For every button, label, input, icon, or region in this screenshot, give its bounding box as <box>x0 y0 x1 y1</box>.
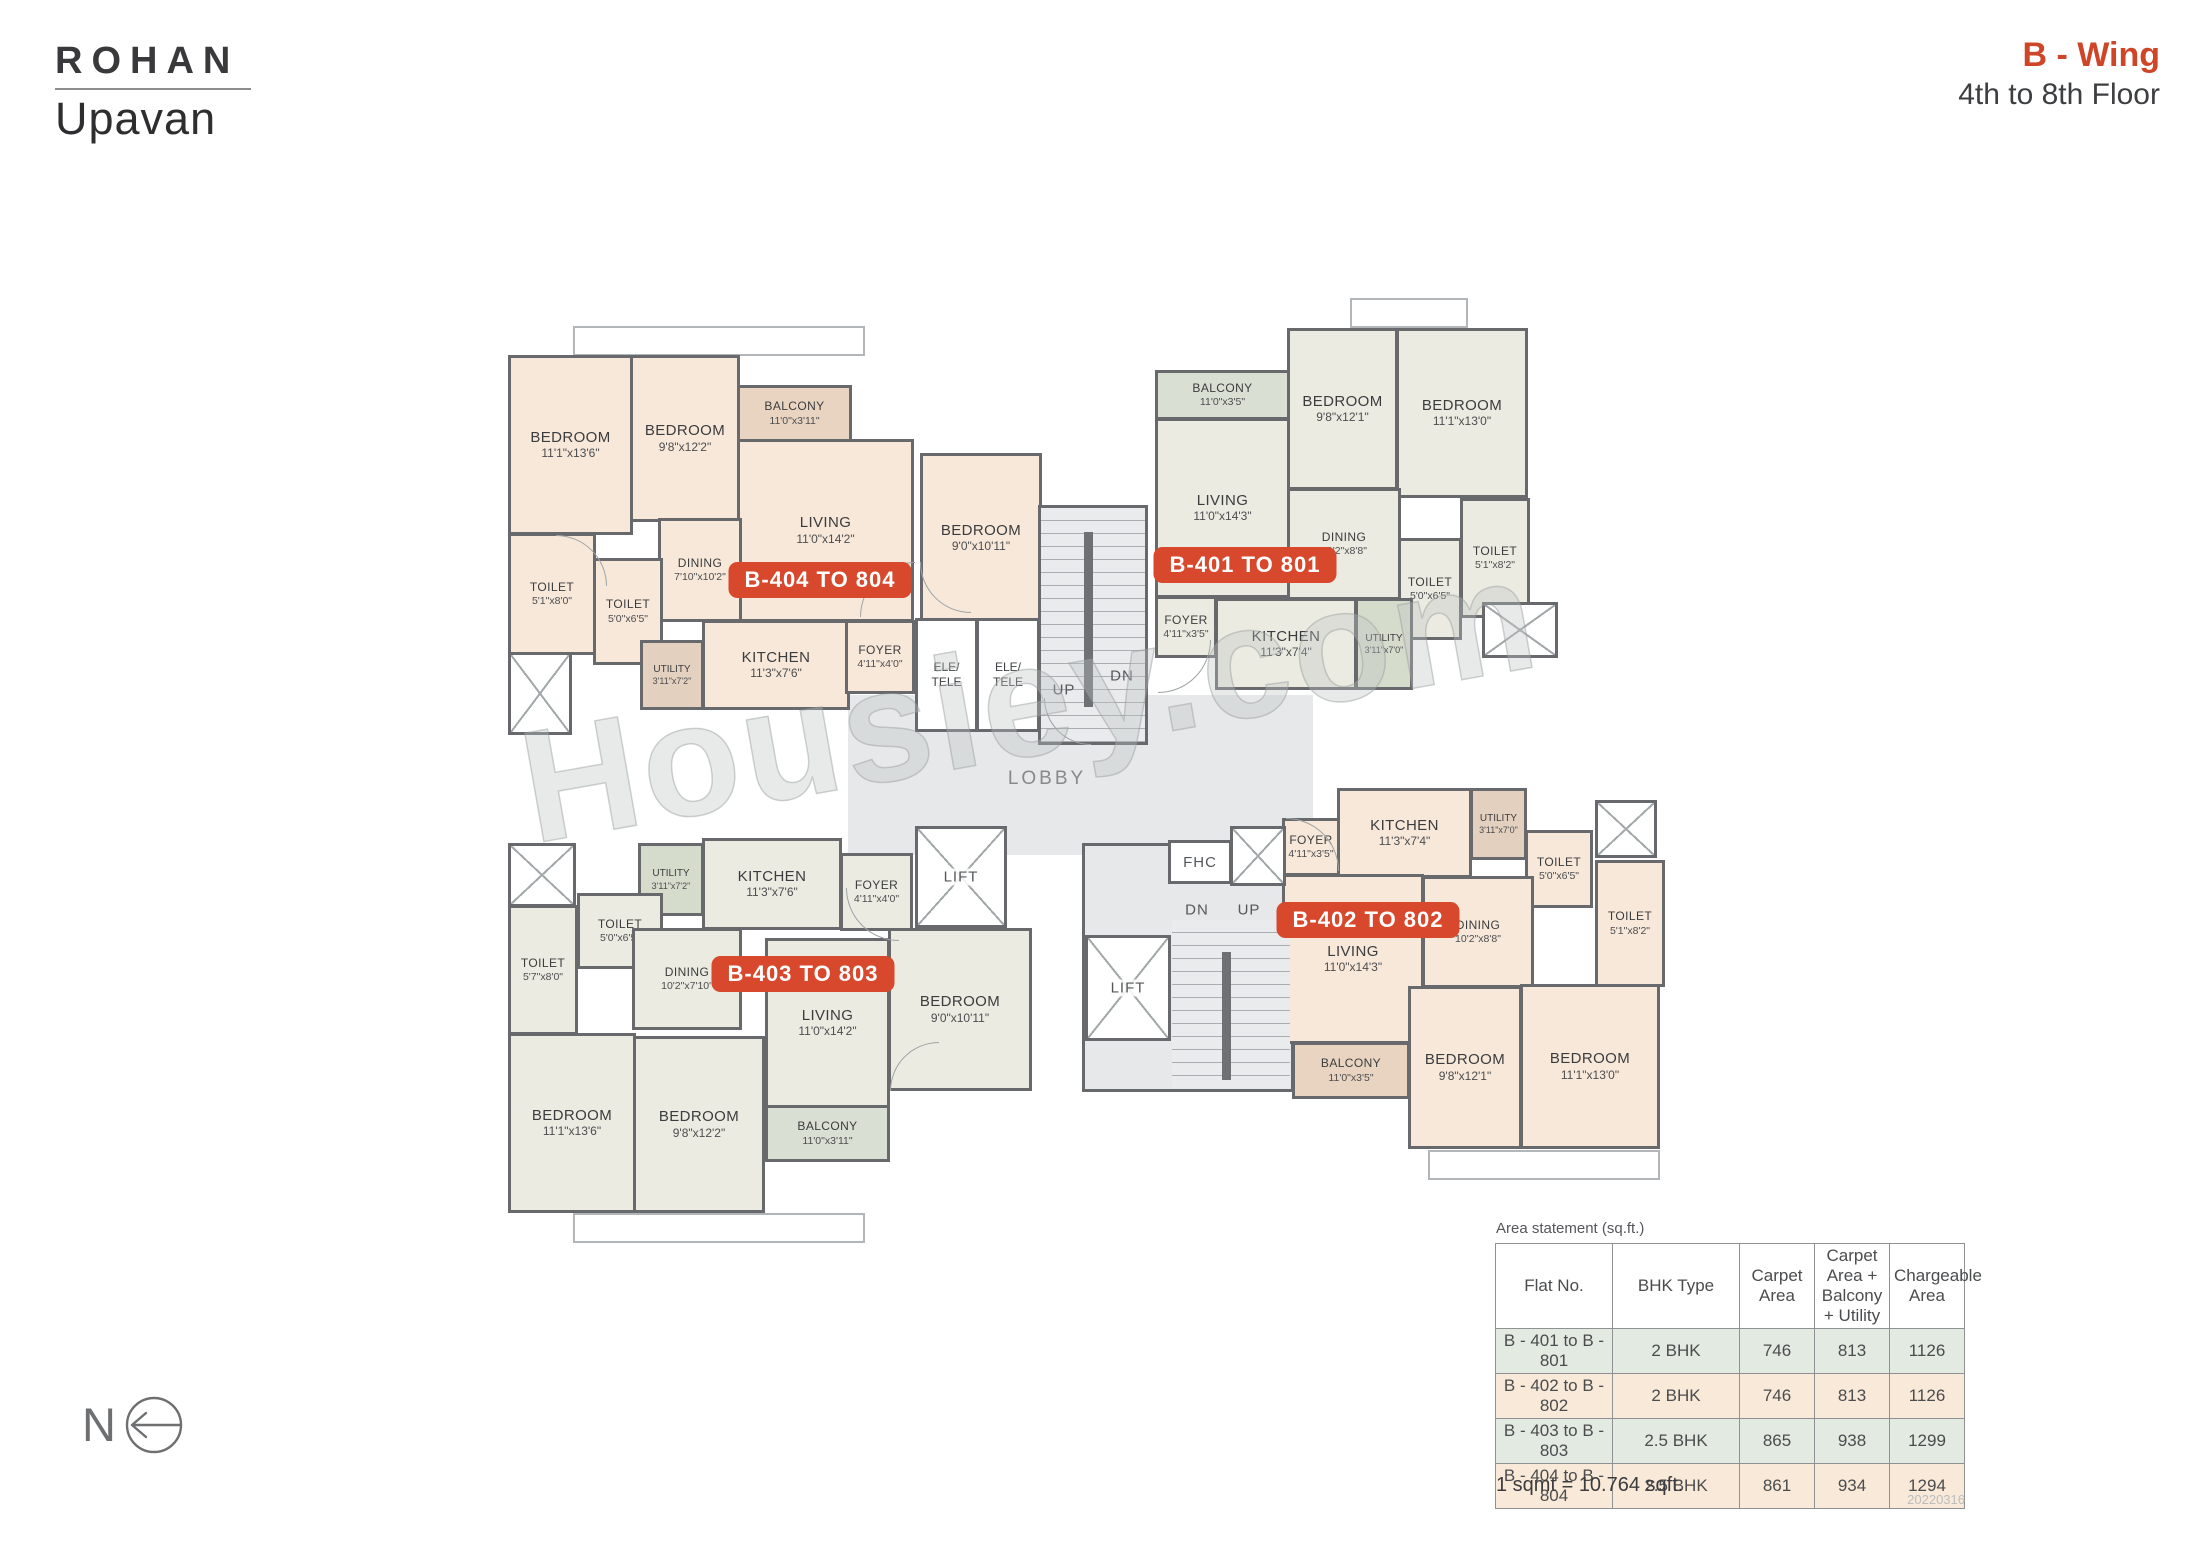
ele-tele-shaft-2: ELE/ TELE <box>976 618 1040 732</box>
ele-label: ELE/ <box>933 660 959 675</box>
table-row: B - 403 to B - 803 2.5 BHK 865 938 1299 <box>1496 1419 1965 1464</box>
staircase-bottom <box>1172 920 1290 1088</box>
duct-shaft <box>1230 826 1286 886</box>
fhc-label: FHC <box>1183 854 1217 871</box>
tele-label: TELE <box>993 675 1023 690</box>
window-ledge <box>1350 298 1468 328</box>
room-b402-bedroom-2: BEDROOM11'1"x13'0" <box>1520 984 1660 1149</box>
room-b403-toilet-1: TOILET5'7"x8'0" <box>508 905 578 1035</box>
brand-name: ROHAN <box>55 40 251 83</box>
room-b403-balcony: BALCONY11'0"x3'11" <box>765 1105 890 1162</box>
cell-carpet: 861 <box>1740 1464 1815 1509</box>
room-b402-living: LIVING11'0"x14'3" <box>1282 874 1424 1044</box>
room-b402-toilet-2: TOILET5'0"x6'5" <box>1525 830 1593 908</box>
table-header-row: Flat No. BHK Type Carpet Area Carpet Are… <box>1496 1244 1965 1329</box>
room-b401-dining: DINING10'2"x8'8" <box>1287 488 1401 600</box>
unit-badge-b401: B-401 TO 801 <box>1153 547 1336 583</box>
room-b404-bedroom-2: BEDROOM9'8"x12'2" <box>630 355 740 522</box>
cell-bhk: 2 BHK <box>1613 1329 1740 1374</box>
cell-carpet-bu: 938 <box>1815 1419 1890 1464</box>
room-b403-kitchen: KITCHEN11'3"x7'6" <box>702 838 842 930</box>
room-b401-balcony: BALCONY11'0"x3'5" <box>1155 370 1290 420</box>
col-flat-no: Flat No. <box>1496 1244 1613 1329</box>
room-b402-kitchen: KITCHEN11'3"x7'4" <box>1337 788 1472 878</box>
cell-bhk: 2.5 BHK <box>1613 1419 1740 1464</box>
duct-shaft <box>508 843 576 907</box>
room-b401-utility: UTILITY3'11"x7'0" <box>1355 598 1413 690</box>
north-indicator: N <box>72 1392 197 1463</box>
lift-label-1: LIFT <box>940 869 983 886</box>
col-carpet-area: Carpet Area <box>1740 1244 1815 1329</box>
cell-chargeable: 1126 <box>1890 1374 1965 1419</box>
col-chargeable-area: Chargeable Area <box>1890 1244 1965 1329</box>
table-row: B - 402 to B - 802 2 BHK 746 813 1126 <box>1496 1374 1965 1419</box>
window-ledge <box>573 326 865 356</box>
area-table-title: Area statement (sq.ft.) <box>1496 1220 1644 1237</box>
table-row: B - 401 to B - 801 2 BHK 746 813 1126 <box>1496 1329 1965 1374</box>
window-ledge <box>1428 1150 1660 1180</box>
room-b404-foyer: FOYER4'11"x4'0" <box>845 620 915 694</box>
north-arrow-icon: N <box>72 1392 197 1458</box>
room-b404-balcony: BALCONY11'0"x3'11" <box>737 385 852 442</box>
cell-chargeable: 1126 <box>1890 1329 1965 1374</box>
lift-label-2: LIFT <box>1107 980 1150 997</box>
cell-carpet-bu: 813 <box>1815 1374 1890 1419</box>
stair-up-label-2: UP <box>1238 902 1261 919</box>
cell-carpet: 865 <box>1740 1419 1815 1464</box>
cell-carpet: 746 <box>1740 1374 1815 1419</box>
room-b401-bedroom-2: BEDROOM11'1"x13'0" <box>1396 328 1528 498</box>
cell-carpet: 746 <box>1740 1329 1815 1374</box>
area-statement-table: Flat No. BHK Type Carpet Area Carpet Are… <box>1495 1243 1965 1509</box>
ele-tele-shaft-1: ELE/ TELE <box>915 618 978 732</box>
door-swing <box>1158 640 1211 693</box>
room-b404-kitchen: KITCHEN11'3"x7'6" <box>702 620 850 710</box>
tele-label: TELE <box>931 675 961 690</box>
room-b402-bedroom-1: BEDROOM9'8"x12'1" <box>1408 986 1522 1149</box>
room-b402-utility: UTILITY3'11"x7'0" <box>1470 788 1527 860</box>
duct-shaft <box>508 652 572 735</box>
room-b401-toilet-1: TOILET5'1"x8'2" <box>1460 498 1530 618</box>
stair-dn-label-2: DN <box>1185 902 1209 919</box>
wing-label: B - Wing <box>1958 36 2160 75</box>
col-bhk-type: BHK Type <box>1613 1244 1740 1329</box>
window-ledge <box>573 1213 865 1243</box>
conversion-note: 1 sqmt = 10.764 sqft. <box>1496 1474 1683 1497</box>
north-letter: N <box>82 1398 116 1451</box>
room-b402-toilet-1: TOILET5'1"x8'2" <box>1595 860 1665 987</box>
duct-shaft <box>1595 800 1657 858</box>
cell-flat: B - 401 to B - 801 <box>1496 1329 1613 1374</box>
room-b403-bedroom-1: BEDROOM11'1"x13'6" <box>508 1033 636 1213</box>
ele-label: ELE/ <box>995 660 1021 675</box>
cell-flat: B - 402 to B - 802 <box>1496 1374 1613 1419</box>
cell-flat: B - 403 to B - 803 <box>1496 1419 1613 1464</box>
lobby-label: LOBBY <box>1008 768 1086 790</box>
plan-title: B - Wing 4th to 8th Floor <box>1958 36 2160 112</box>
stair-rail <box>1222 952 1231 1080</box>
col-carpet-balcony-utility: Carpet Area + Balcony + Utility <box>1815 1244 1890 1329</box>
brand-divider <box>55 88 251 90</box>
room-b401-bedroom-1: BEDROOM9'8"x12'1" <box>1287 328 1398 490</box>
floor-range-label: 4th to 8th Floor <box>1958 78 2160 112</box>
room-b403-bedroom-2: BEDROOM9'8"x12'2" <box>633 1036 765 1213</box>
cell-chargeable: 1299 <box>1890 1419 1965 1464</box>
unit-badge-b403: B-403 TO 803 <box>711 956 894 992</box>
stair-up-label: UP <box>1053 682 1076 699</box>
cell-bhk: 2 BHK <box>1613 1374 1740 1419</box>
door-swing <box>556 535 607 586</box>
room-b404-bedroom-1: BEDROOM11'1"x13'6" <box>508 355 633 535</box>
stair-rail <box>1084 532 1093 707</box>
unit-badge-b404: B-404 TO 804 <box>728 562 911 598</box>
duct-shaft <box>1482 602 1558 658</box>
room-b404-utility: UTILITY3'11"x7'2" <box>640 640 704 710</box>
brand-logo: ROHAN Upavan <box>55 40 251 145</box>
brand-project: Upavan <box>55 93 251 145</box>
unit-badge-b402: B-402 TO 802 <box>1276 902 1459 938</box>
room-b401-kitchen: KITCHEN11'3"x7'4" <box>1215 598 1357 690</box>
room-b402-balcony: BALCONY11'0"x3'5" <box>1292 1042 1410 1099</box>
stair-dn-label: DN <box>1110 668 1134 685</box>
door-swing <box>846 888 899 941</box>
fhc-box: FHC <box>1168 840 1232 884</box>
date-code: 20220316 <box>1840 1492 1965 1507</box>
cell-carpet-bu: 813 <box>1815 1329 1890 1374</box>
